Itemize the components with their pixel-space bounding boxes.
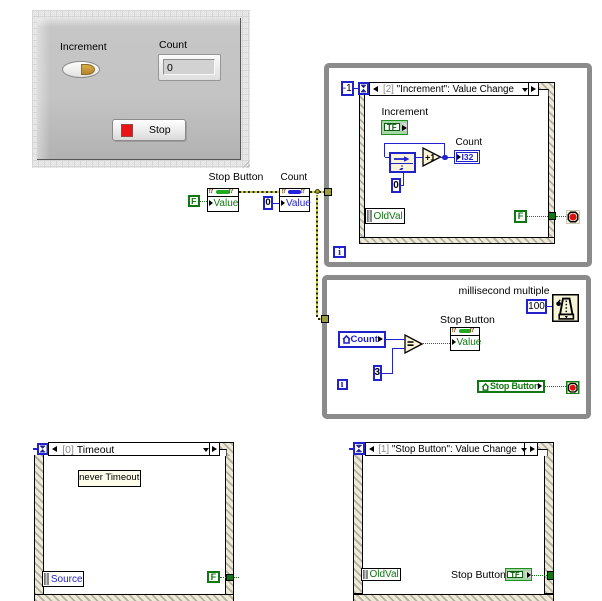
- svg-text:+1: +1: [425, 153, 435, 163]
